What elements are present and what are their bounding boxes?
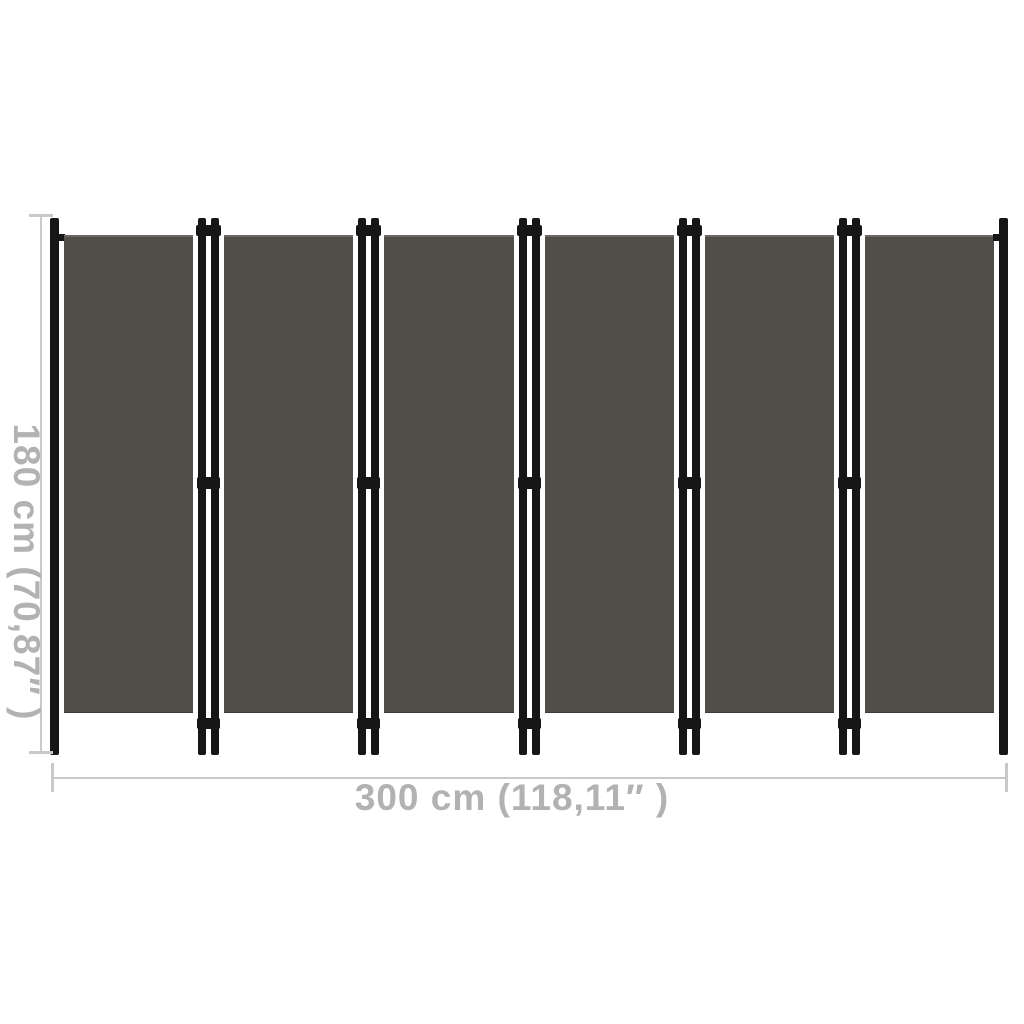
height-dimension-tick-top xyxy=(29,214,53,217)
hinge-bracket-top xyxy=(517,225,542,236)
hinge-bracket-bottom xyxy=(197,718,220,729)
hinge-joint-2 xyxy=(358,218,379,755)
width-dimension-label: 300 cm (118,11″ ) xyxy=(312,778,712,818)
fabric xyxy=(705,235,834,713)
hinge-joint-5 xyxy=(839,218,860,755)
width-dimension-tick-left xyxy=(51,763,54,792)
fabric-panel-2 xyxy=(224,218,353,755)
frame-pole-right xyxy=(999,218,1008,755)
hinge-bracket-middle xyxy=(518,477,541,489)
hinge-bracket-top xyxy=(196,225,221,236)
hinge-bracket-bottom xyxy=(678,718,701,729)
hinge-joint-4 xyxy=(679,218,700,755)
hinge-bracket-middle xyxy=(357,477,380,489)
frame-pole-left xyxy=(50,218,59,755)
hinge-bracket-middle xyxy=(838,477,861,489)
fabric-panel-6 xyxy=(865,218,994,755)
pole-bar xyxy=(999,218,1008,755)
hinge-joint-1 xyxy=(198,218,219,755)
fabric xyxy=(545,235,674,713)
hinge-bracket-top xyxy=(677,225,702,236)
frame-nub xyxy=(993,234,999,241)
fabric-panel-4 xyxy=(545,218,674,755)
hinge-bracket-middle xyxy=(678,477,701,489)
width-dimension-tick-right xyxy=(1005,763,1008,792)
fabric xyxy=(224,235,353,713)
room-divider xyxy=(50,218,1008,755)
hinge-bracket-bottom xyxy=(518,718,541,729)
hinge-bracket-top xyxy=(837,225,862,236)
hinge-bracket-top xyxy=(356,225,381,236)
hinge-joint-3 xyxy=(519,218,540,755)
pole-bar xyxy=(50,218,59,755)
fabric-panel-3 xyxy=(384,218,513,755)
fabric xyxy=(865,235,994,713)
hinge-bracket-bottom xyxy=(357,718,380,729)
fabric xyxy=(64,235,193,713)
height-dimension-label: 180 cm (70,87″ ) xyxy=(6,372,46,772)
fabric xyxy=(384,235,513,713)
fabric-panel-1 xyxy=(64,218,193,755)
fabric-panel-5 xyxy=(705,218,834,755)
hinge-bracket-bottom xyxy=(838,718,861,729)
hinge-bracket-middle xyxy=(197,477,220,489)
product-dimension-diagram: 180 cm (70,87″ ) 300 cm (118,11″ ) xyxy=(0,0,1024,1024)
